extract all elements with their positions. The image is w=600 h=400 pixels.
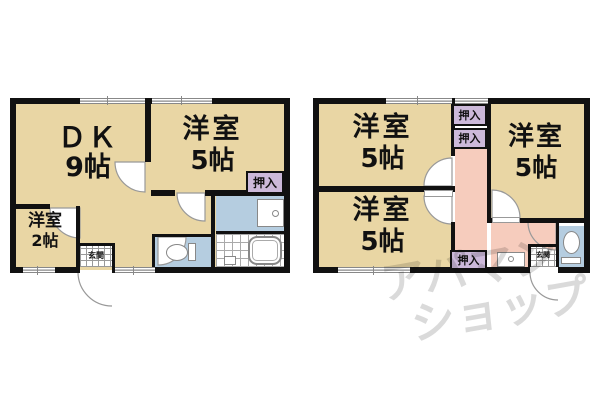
sink-icon bbox=[257, 199, 284, 227]
window-tick bbox=[37, 266, 38, 275]
drain-icon bbox=[224, 256, 236, 265]
window bbox=[23, 267, 55, 273]
room-size-right1: 5帖 bbox=[325, 146, 440, 172]
wall bbox=[152, 234, 213, 237]
window-tick bbox=[107, 96, 108, 105]
window-tick bbox=[373, 266, 374, 275]
toilet-icon bbox=[166, 244, 188, 261]
room-label-dk: ＤＫ bbox=[38, 124, 138, 152]
door-leaf bbox=[492, 217, 520, 223]
door-arc-left-front bbox=[78, 272, 112, 306]
window bbox=[386, 98, 452, 104]
room-label-right3: 洋室 bbox=[490, 124, 582, 150]
window-tick bbox=[133, 266, 134, 275]
room-label-left-west5: 洋室 bbox=[160, 116, 265, 143]
wall bbox=[151, 190, 175, 196]
room-label-left-west2: 洋室 bbox=[16, 213, 74, 230]
wall bbox=[211, 196, 215, 267]
door-leaf bbox=[424, 190, 453, 197]
closet-label: 押入 bbox=[452, 110, 487, 121]
room-label-right1: 洋室 bbox=[325, 114, 440, 141]
wall bbox=[13, 204, 50, 209]
room-size-right3: 5帖 bbox=[490, 155, 582, 180]
wall bbox=[284, 98, 290, 273]
floorplan-canvas: ＤＫ 9帖 洋室 5帖 洋室 2帖 押入 玄関 洋室 5帖 洋室 5帖 洋室 5… bbox=[0, 0, 600, 400]
room-size-dk: 9帖 bbox=[38, 154, 138, 181]
faucet-icon bbox=[272, 210, 279, 217]
wall bbox=[216, 231, 284, 234]
wall bbox=[584, 98, 590, 273]
closet-label: 押入 bbox=[452, 133, 487, 144]
wall bbox=[112, 243, 115, 267]
window bbox=[80, 98, 145, 104]
bathtub-icon bbox=[248, 236, 282, 265]
wall bbox=[152, 237, 155, 267]
window-tick bbox=[417, 96, 418, 105]
window bbox=[152, 98, 212, 104]
door-arcs-layer bbox=[0, 0, 600, 400]
door-arc-right-room3 bbox=[492, 190, 520, 218]
entrance-label: 玄関 bbox=[80, 252, 112, 260]
room-size-left-west5: 5帖 bbox=[160, 148, 265, 174]
door-arc-left-west5 bbox=[177, 193, 205, 221]
wall bbox=[520, 218, 584, 223]
room-label-right2: 洋室 bbox=[325, 197, 440, 224]
toilet-tank-icon bbox=[188, 243, 196, 261]
closet-label: 押入 bbox=[246, 177, 284, 189]
wall bbox=[145, 104, 151, 162]
wall bbox=[77, 243, 115, 246]
window bbox=[115, 267, 155, 273]
window-tick bbox=[181, 96, 182, 105]
room-size-left-west2: 2帖 bbox=[16, 233, 74, 249]
